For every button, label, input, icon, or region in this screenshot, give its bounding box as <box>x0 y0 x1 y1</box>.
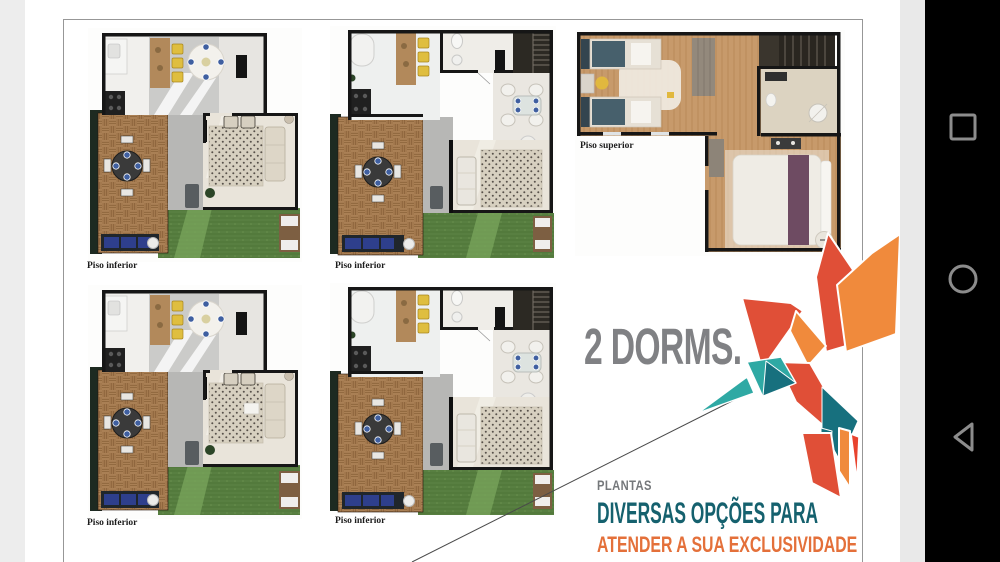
document-page[interactable]: Piso inferior Piso inferior Piso superio… <box>25 0 900 562</box>
left-gutter <box>0 0 25 562</box>
hummingbird-logo <box>690 225 900 510</box>
back-button[interactable] <box>925 407 1000 467</box>
plan-label-2: Piso inferior <box>335 261 385 271</box>
floor-plan-lower-2 <box>330 26 556 258</box>
android-screen: Piso inferior Piso inferior Piso superio… <box>0 0 1000 562</box>
home-button[interactable] <box>925 249 1000 309</box>
plan-label-3: Piso superior <box>580 141 634 151</box>
floor-plan-lower-3 <box>88 285 302 519</box>
floor-plan-lower-1 <box>88 28 302 262</box>
android-navbar <box>925 0 1000 562</box>
plan-label-4: Piso inferior <box>87 518 137 528</box>
recents-square-icon <box>948 112 978 142</box>
plan-label-5: Piso inferior <box>335 516 385 526</box>
floor-plan-lower-4 <box>330 283 556 515</box>
plan-label-1: Piso inferior <box>87 261 137 271</box>
home-circle-icon <box>947 263 979 295</box>
recents-button[interactable] <box>925 97 1000 157</box>
back-triangle-icon <box>949 420 977 454</box>
tagline-line2: ATENDER A SUA EXCLUSIVIDADE <box>597 534 871 556</box>
right-gutter <box>900 0 925 562</box>
